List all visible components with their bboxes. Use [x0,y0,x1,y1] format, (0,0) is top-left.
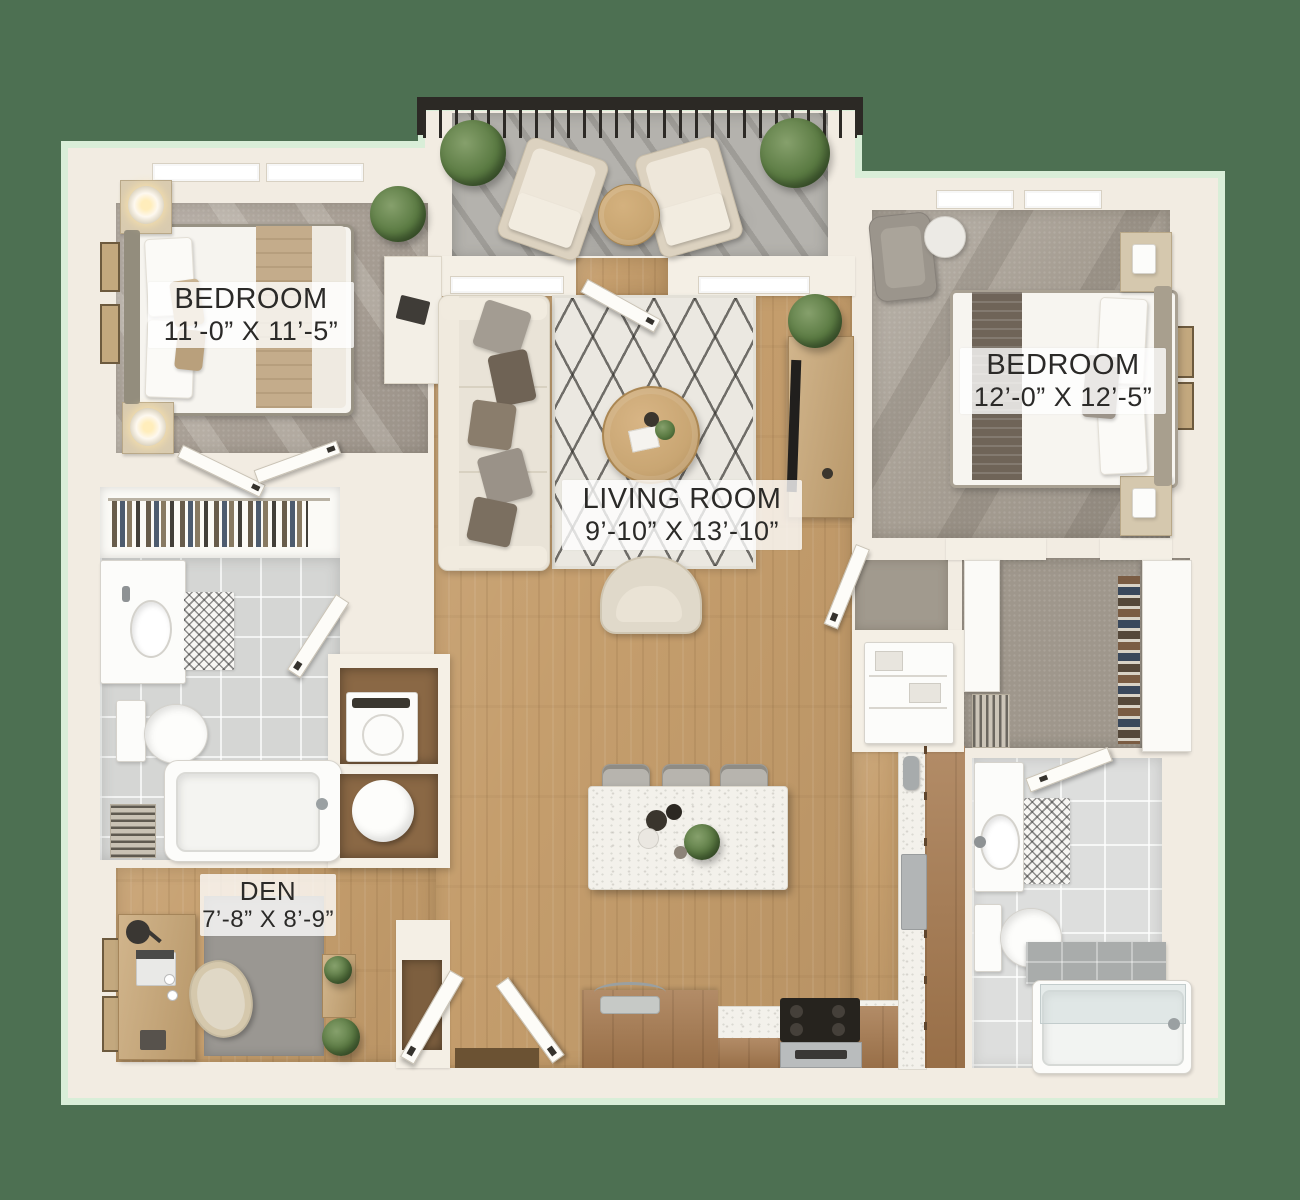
sofa-armrest [441,546,547,568]
shelf-item [909,683,941,703]
room-dimensions: 7’-8” X 8’-9” [202,906,334,934]
shoe-rack [1118,576,1140,744]
balcony-side-table [598,184,660,246]
bedroom-2-window [936,190,1014,209]
bedroom-1-window [266,163,364,182]
shelf-item [875,651,903,671]
table-lamp [128,186,164,224]
washer-lid [362,714,404,756]
water-heater [352,780,414,842]
balcony-railing-end-left [417,97,423,135]
desk-mug [164,974,175,985]
living-room-window [698,276,810,294]
floor-vent [110,804,156,858]
wall-art [100,304,120,364]
door-handle [830,612,839,622]
shower-tile-wall [1026,942,1166,984]
bedroom-2-window [1024,190,1102,209]
island-plant [684,824,720,860]
nightstand-decor [1132,244,1156,274]
balcony-plant-right [760,118,830,188]
desk-pad [140,1030,166,1050]
entry-threshold [455,1048,539,1068]
room-dimensions: 9’-10” X 13’-10” [585,516,779,548]
wall-art [1176,382,1194,430]
vanity-sink [980,814,1020,870]
oven-window [795,1050,847,1059]
room-name: BEDROOM [986,348,1139,382]
den-floor-plant [322,1018,360,1056]
island-bowl [674,846,687,859]
room-name: BEDROOM [174,282,327,316]
room-name: DEN [240,876,296,907]
oven-front [780,1042,862,1068]
burner [832,1023,845,1036]
coffee-table-plant [655,420,675,440]
floor-plan: BEDROOM 11’-0” X 11’-5” BEDROOM 12’-0” X… [0,0,1300,1200]
bath-mat [184,592,234,670]
room-label-den: DEN 7’-8” X 8’-9” [200,874,336,936]
desk-mug [167,990,178,1001]
den-laptop-screen [136,950,174,959]
balcony-plant-left [440,120,506,186]
bathtub-basin [176,772,320,852]
room-name: LIVING ROOM [583,482,782,516]
closet-wardrobe [1142,560,1192,752]
hall-cabinet [864,642,954,744]
room-label-bedroom-2: BEDROOM 12’-0” X 12’-5” [960,348,1166,414]
sofa-pillow [467,399,517,451]
balcony-railing-bar [417,97,863,110]
accent-chair-seat [616,586,682,622]
sofa-backrest [439,296,459,570]
table-lamp [130,408,166,446]
bedroom-1-headboard [124,230,140,404]
toilet-tank [116,700,146,762]
toilet-tank [974,904,1002,972]
console-decor [822,468,833,479]
door-handle [251,483,260,491]
stove-cooktop [780,998,860,1042]
shelf-line [869,675,947,677]
console-plant [788,294,842,348]
vanity-faucet [122,586,130,602]
door-handle [547,1046,557,1057]
closet-wardrobe [964,560,1000,692]
kitchen-cabinets-right [925,746,965,1068]
burner [790,1023,803,1036]
shower-glass [1040,984,1186,1024]
door-handle [1039,775,1048,783]
vanity-sink [130,600,172,658]
hanging-clothes [112,501,308,547]
burner [790,1005,803,1018]
bedroom-1-plant [370,186,426,242]
tub-faucet [316,798,328,810]
room-label-bedroom-1: BEDROOM 11’-0” X 11’-5” [148,282,354,348]
door-handle [326,445,335,452]
toilet-bowl [144,704,208,764]
island-plate [638,828,659,849]
den-table-plant [324,956,352,984]
room-dimensions: 11’-0” X 11’-5” [164,316,339,348]
door-handle [645,317,654,325]
bath-mat [1024,798,1070,884]
balcony-railing-end-right [857,97,863,135]
dishwasher [901,854,927,930]
room-label-living-room: LIVING ROOM 9’-10” X 13’-10” [562,480,802,550]
bedroom-2-bottom-wall [1100,538,1172,560]
vanity-faucet [974,836,986,848]
floor-vent [972,694,1010,748]
kitchen-faucet-right [903,756,919,790]
bedroom-2-bottom-wall [946,538,1046,560]
nightstand-decor [1132,488,1156,518]
door-handle [406,1046,416,1057]
washer-control-panel [352,698,410,708]
sofa-pillow [466,496,518,548]
wall-art [100,242,120,292]
room-dimensions: 12’-0” X 12’-5” [974,382,1153,414]
living-room-window [450,276,564,294]
bedroom-2-side-table [924,216,966,258]
wall-art [1176,326,1194,378]
kitchen-sink-faucet [594,982,666,1003]
island-bowl [666,804,682,820]
hall-carpet [855,560,948,630]
tub-faucet [1168,1018,1180,1030]
burner [832,1005,845,1018]
shelf-line [869,707,947,709]
armchair-cushion [880,225,926,289]
door-handle [293,661,302,671]
